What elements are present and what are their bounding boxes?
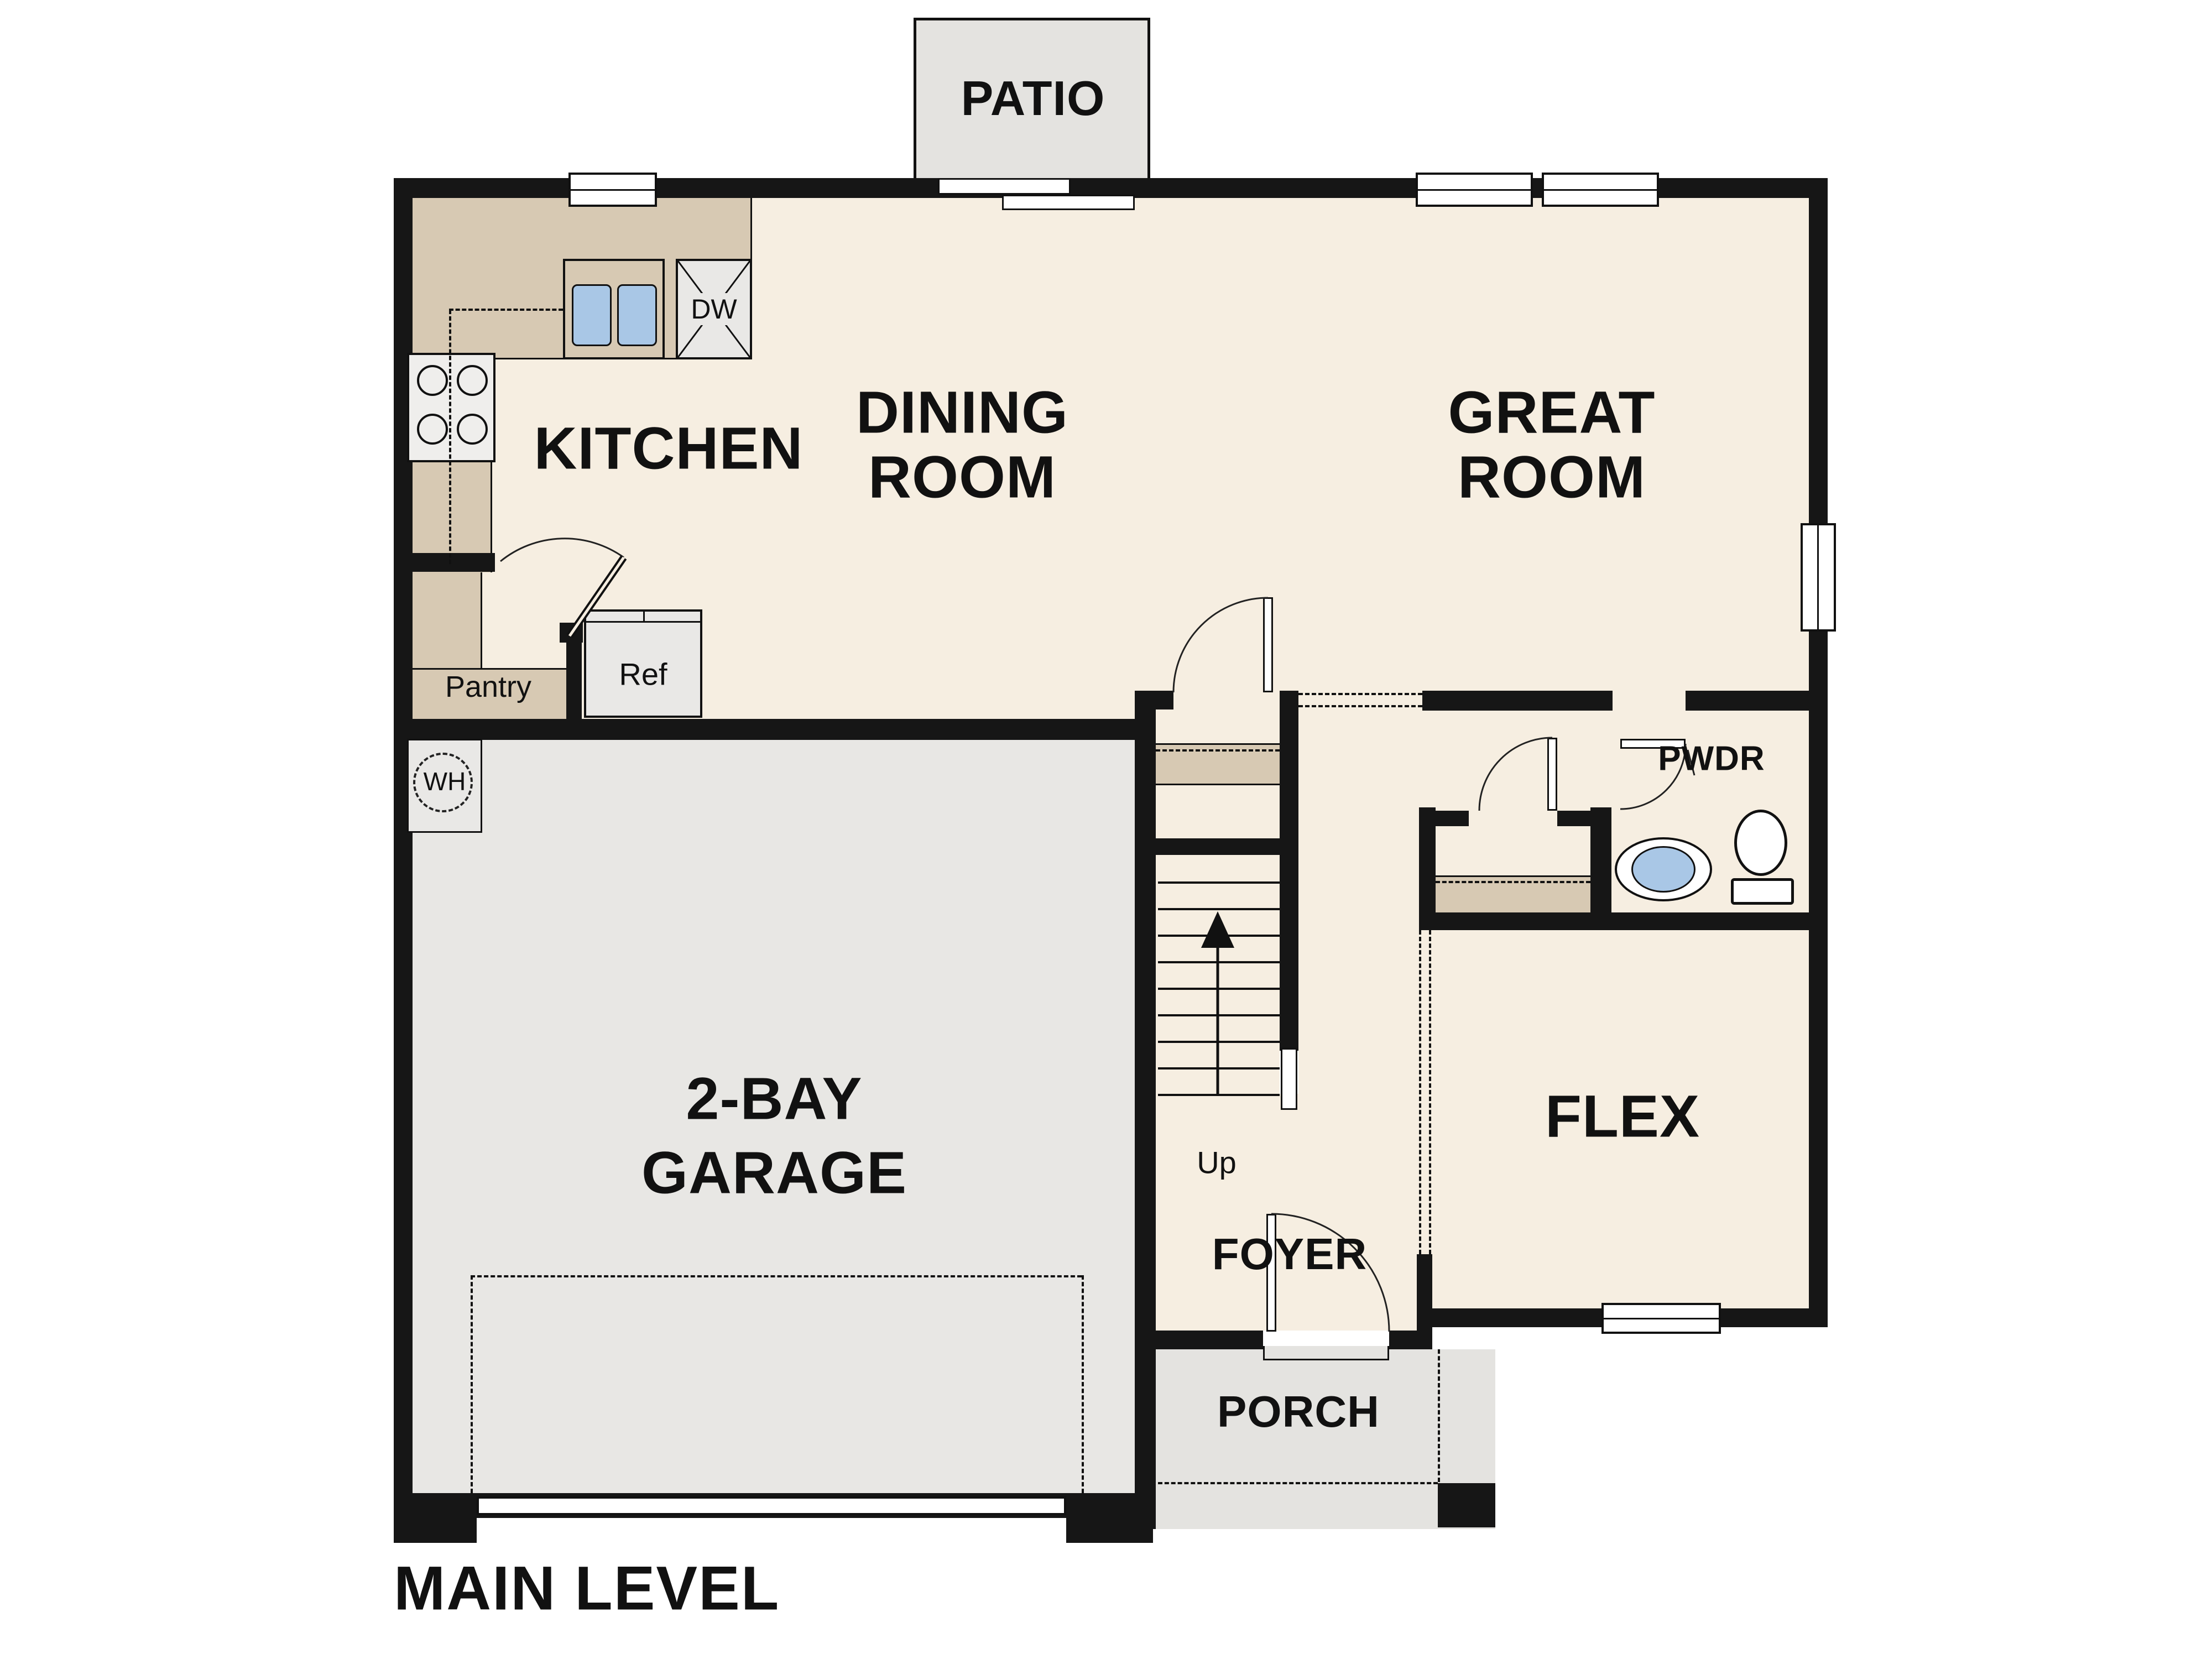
toilet-bowl xyxy=(1734,810,1787,876)
wall-closet-pwdr-divider xyxy=(1590,807,1611,930)
refrigerator-box: Ref xyxy=(584,609,702,718)
stair-tread xyxy=(1158,1041,1280,1043)
burner-icon xyxy=(417,365,448,396)
wall-stair-mid xyxy=(1156,838,1298,855)
room-hall-floor xyxy=(1298,709,1419,1094)
label-dishwasher: DW xyxy=(688,293,739,325)
wall-greatroom-bottom-right xyxy=(1686,691,1828,711)
porch-post xyxy=(1438,1483,1495,1527)
garage-door-ceiling-dash xyxy=(471,1275,1082,1277)
label-kitchen: KITCHEN xyxy=(534,414,804,483)
stair-landing-shelf xyxy=(1156,743,1280,785)
floor-plan: Ref DW WH xyxy=(0,0,2212,1659)
garage-door-ceiling-dash xyxy=(471,1275,473,1493)
wall-pantry-divider xyxy=(566,630,582,740)
porch-roof-dash xyxy=(1158,1482,1438,1484)
wall-greatroom-bottom-left xyxy=(1422,691,1613,711)
wall-pwdr-bottom xyxy=(1419,912,1828,930)
label-pwdr: PWDR xyxy=(1658,739,1765,779)
pwdr-sink xyxy=(1615,837,1712,901)
toilet-tank xyxy=(1731,878,1794,905)
label-foyer: FOYER xyxy=(1212,1229,1368,1280)
label-flex: FLEX xyxy=(1545,1082,1700,1151)
label-great-1: GREAT xyxy=(1448,378,1656,447)
stair-tread xyxy=(1158,1094,1280,1096)
label-pantry: Pantry xyxy=(445,670,531,704)
garage-door xyxy=(477,1496,1066,1515)
sink-basin-left xyxy=(572,284,612,346)
window-kitchen-sink xyxy=(568,173,657,207)
door-closet-panel xyxy=(1547,738,1557,811)
window-greatroom-right xyxy=(1801,523,1836,632)
patio-slider-panel-1 xyxy=(938,178,1071,195)
window-mullion xyxy=(1544,189,1657,191)
wall-garage-door-stub-left xyxy=(413,1518,477,1543)
label-patio: PATIO xyxy=(961,70,1105,127)
burner-icon xyxy=(417,414,448,445)
cooktop xyxy=(407,353,495,462)
dishwasher-box: DW xyxy=(676,259,752,359)
wall-pantry-stub xyxy=(394,553,495,572)
sink-basin-right xyxy=(617,284,657,346)
label-refrigerator: Ref xyxy=(619,656,667,692)
page-title: MAIN LEVEL xyxy=(394,1553,780,1624)
front-door-threshold xyxy=(1263,1346,1389,1360)
label-dining-2: ROOM xyxy=(868,442,1056,512)
stair-tread xyxy=(1158,908,1280,910)
wall-foyer-bottom-left xyxy=(1156,1331,1263,1349)
label-great-2: ROOM xyxy=(1458,442,1646,512)
stair-handrail xyxy=(1281,1048,1297,1110)
porch-roof-dash xyxy=(1438,1349,1440,1482)
label-water-heater: WH xyxy=(424,766,466,796)
burner-icon xyxy=(457,414,488,445)
window-mullion xyxy=(1817,525,1819,629)
opening-greatroom-hall-dash xyxy=(1298,693,1422,695)
wall-closet-top-right xyxy=(1557,811,1590,826)
window-greatroom-2 xyxy=(1542,173,1659,207)
kitchen-sink xyxy=(563,259,665,359)
shelf-dashed-line xyxy=(1156,749,1280,752)
cabinet-dashed-line xyxy=(449,310,451,564)
opening-flex-dash xyxy=(1429,930,1431,1254)
burner-icon xyxy=(457,365,488,396)
stair-tread xyxy=(1158,935,1280,937)
label-dining-1: DINING xyxy=(856,378,1068,447)
stair-tread xyxy=(1158,881,1280,884)
wall-garage-top xyxy=(394,719,1156,740)
stair-tread xyxy=(1158,988,1280,990)
stair-tread xyxy=(1158,1014,1280,1016)
label-up: Up xyxy=(1197,1145,1237,1181)
label-garage-1: 2-BAY xyxy=(686,1064,862,1133)
opening-greatroom-hall-dash xyxy=(1298,705,1422,707)
wall-foyer-bottom-right xyxy=(1389,1331,1432,1349)
opening-flex-dash xyxy=(1419,930,1421,1254)
patio-slider-panel-2 xyxy=(1002,195,1135,210)
wall-pantry-hinge xyxy=(560,623,583,643)
window-mullion xyxy=(1604,1318,1719,1319)
garage-door-ceiling-dash xyxy=(1082,1275,1084,1493)
water-heater-box: WH xyxy=(407,739,482,833)
shelf-dashed-line xyxy=(1436,881,1590,883)
window-greatroom-1 xyxy=(1416,173,1533,207)
door-dining-stair-panel xyxy=(1263,597,1273,692)
wall-exterior-right xyxy=(1809,178,1828,1327)
label-porch: PORCH xyxy=(1217,1386,1380,1437)
window-mullion xyxy=(571,189,655,191)
window-mullion xyxy=(1418,189,1531,191)
wall-closet-top-left xyxy=(1419,811,1469,826)
stair-tread xyxy=(1158,961,1280,963)
wall-stair-right xyxy=(1280,691,1298,1051)
wall-dining-door-stub xyxy=(1135,691,1173,709)
wall-garage-right xyxy=(1135,691,1156,1529)
pwdr-sink-bowl xyxy=(1631,846,1695,893)
label-garage-2: GARAGE xyxy=(641,1138,907,1207)
cabinet-dashed-line xyxy=(449,309,563,311)
window-flex xyxy=(1601,1303,1721,1334)
room-foyer-floor xyxy=(1156,1094,1419,1331)
closet-shelf xyxy=(1436,875,1590,912)
refrigerator-doors xyxy=(586,612,700,623)
refrigerator-door-split xyxy=(643,612,645,621)
wall-garage-door-stub-right xyxy=(1066,1518,1153,1543)
stair-tread xyxy=(1158,1067,1280,1070)
